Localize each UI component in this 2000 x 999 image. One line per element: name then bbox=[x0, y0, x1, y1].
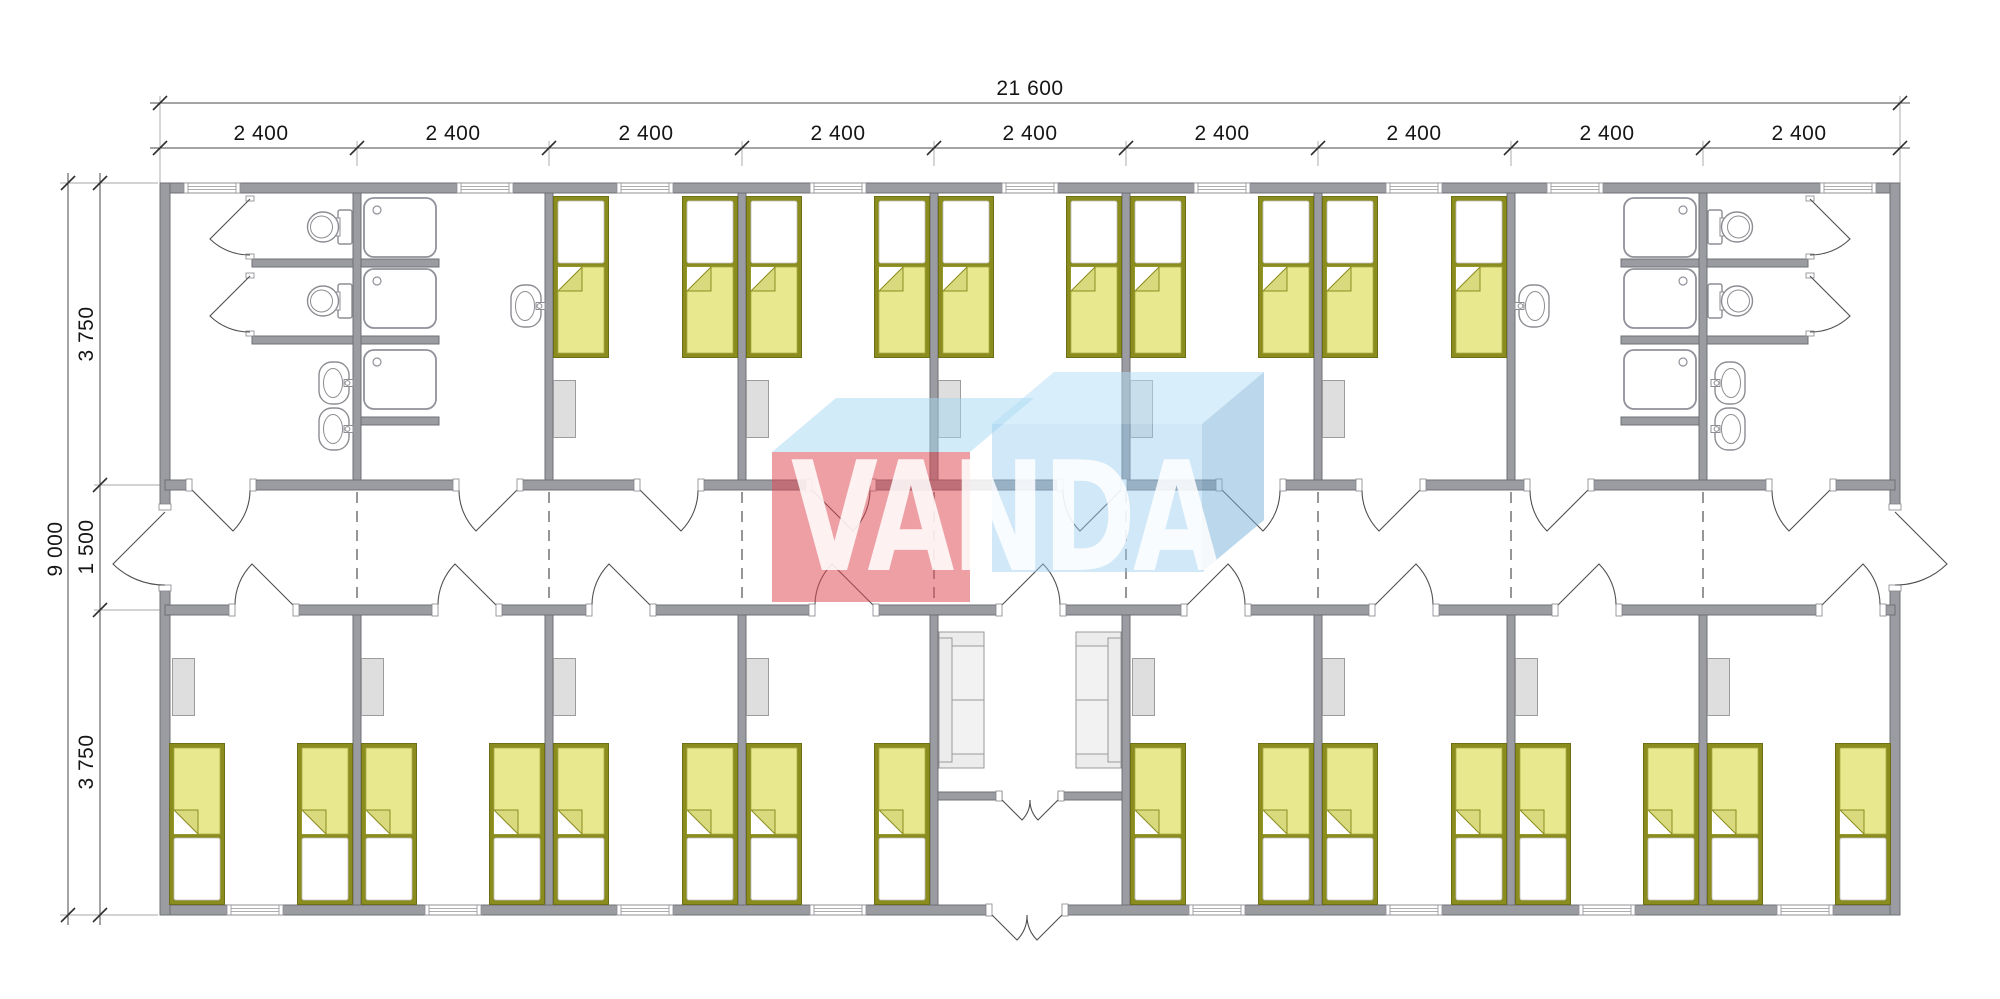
sofa bbox=[939, 632, 984, 768]
bed bbox=[1452, 197, 1507, 358]
window bbox=[457, 183, 513, 193]
window bbox=[1002, 183, 1058, 193]
entrance-door-swing bbox=[1027, 915, 1062, 940]
bed bbox=[1708, 744, 1763, 905]
shower-stall bbox=[364, 198, 436, 257]
dim-row-depth: 3 750 bbox=[75, 734, 98, 789]
partition-wall bbox=[738, 193, 746, 480]
wardrobe bbox=[1708, 659, 1730, 716]
beds-top-row bbox=[554, 197, 1507, 358]
shower-stall bbox=[1624, 269, 1696, 328]
floor-plan-canvas: 21 600 2 400 2 400 2 400 2 400 2 400 2 4… bbox=[0, 0, 2000, 999]
bed bbox=[1131, 197, 1186, 358]
shower-divider bbox=[1621, 336, 1699, 344]
bed bbox=[1452, 744, 1507, 905]
shower-stall bbox=[1624, 198, 1696, 257]
bed bbox=[747, 197, 802, 358]
dim-row-depth: 3 750 bbox=[75, 306, 98, 361]
door-swing bbox=[1810, 199, 1850, 255]
vanda-logo-text: VANDA bbox=[791, 429, 1220, 606]
partition-wall bbox=[1699, 615, 1707, 905]
wash-basin bbox=[1515, 285, 1549, 327]
bed bbox=[875, 197, 930, 358]
toilet-stall-wall bbox=[1707, 336, 1808, 344]
dim-module: 2 400 bbox=[1386, 122, 1441, 145]
shower-divider bbox=[1621, 259, 1699, 267]
toilet bbox=[308, 210, 353, 244]
bed bbox=[362, 744, 417, 905]
window bbox=[1547, 183, 1603, 193]
window bbox=[1579, 905, 1635, 915]
window bbox=[1386, 905, 1442, 915]
dim-total-width: 21 600 bbox=[996, 77, 1063, 100]
window bbox=[617, 183, 673, 193]
dim-total-height: 9 000 bbox=[44, 521, 67, 576]
wardrobe bbox=[747, 659, 769, 716]
bed bbox=[1131, 744, 1186, 905]
bed bbox=[1259, 744, 1314, 905]
shower-stall bbox=[364, 350, 436, 409]
window bbox=[184, 183, 240, 193]
partition-wall bbox=[1507, 193, 1515, 480]
door-swing bbox=[113, 512, 165, 585]
wardrobe bbox=[554, 381, 576, 438]
shower-divider bbox=[361, 417, 439, 425]
window bbox=[227, 905, 283, 915]
shower-divider bbox=[361, 259, 439, 267]
vestibule-wall bbox=[938, 792, 1002, 800]
vestibule-door-swing bbox=[1030, 800, 1058, 820]
wash-basin bbox=[511, 285, 545, 327]
bed bbox=[554, 197, 609, 358]
dim-module: 2 400 bbox=[233, 122, 288, 145]
partition-wall bbox=[545, 193, 553, 480]
door-swing bbox=[210, 199, 250, 255]
toilet-stall-wall bbox=[1707, 259, 1808, 267]
window bbox=[1777, 905, 1833, 915]
vestibule-wall bbox=[1058, 792, 1122, 800]
dim-module: 2 400 bbox=[1771, 122, 1826, 145]
door-swing bbox=[1895, 512, 1947, 585]
floor-plan-drawing: 21 600 2 400 2 400 2 400 2 400 2 400 2 4… bbox=[0, 0, 2000, 999]
wardrobe bbox=[173, 659, 195, 716]
window bbox=[1820, 183, 1876, 193]
dim-module: 2 400 bbox=[810, 122, 865, 145]
bed bbox=[1259, 197, 1314, 358]
window bbox=[1386, 183, 1442, 193]
window bbox=[425, 905, 481, 915]
toilet bbox=[1708, 284, 1753, 318]
lobby-furniture bbox=[939, 632, 1121, 768]
bed bbox=[490, 744, 545, 905]
door-swing bbox=[210, 276, 250, 332]
toilet-stall-wall bbox=[252, 259, 353, 267]
dim-module: 2 400 bbox=[425, 122, 480, 145]
shower-stall bbox=[1624, 350, 1696, 409]
partition-wall bbox=[545, 615, 553, 905]
dim-module: 2 400 bbox=[1002, 122, 1057, 145]
wash-basin bbox=[319, 408, 353, 450]
wardrobe bbox=[362, 659, 384, 716]
bed bbox=[1516, 744, 1571, 905]
wardrobe bbox=[1323, 659, 1345, 716]
bed bbox=[683, 744, 738, 905]
window bbox=[810, 183, 866, 193]
bed bbox=[875, 744, 930, 905]
bed bbox=[1323, 744, 1378, 905]
bed bbox=[1067, 197, 1122, 358]
bed bbox=[170, 744, 225, 905]
shower-divider bbox=[1621, 417, 1699, 425]
wardrobe bbox=[554, 659, 576, 716]
toilet bbox=[308, 284, 353, 318]
toilet bbox=[1708, 210, 1753, 244]
wardrobe bbox=[1516, 659, 1538, 716]
lobby-wall-right bbox=[1122, 615, 1130, 905]
wash-basin bbox=[319, 362, 353, 404]
bed bbox=[1644, 744, 1699, 905]
beds-bottom-row bbox=[170, 744, 1891, 905]
door-swing bbox=[1810, 276, 1850, 332]
vestibule-door-swing bbox=[1002, 800, 1030, 820]
wash-basin bbox=[1711, 408, 1745, 450]
partition-wall bbox=[353, 615, 361, 905]
partition-wall bbox=[353, 193, 361, 480]
bed bbox=[939, 197, 994, 358]
wardrobe bbox=[1133, 659, 1155, 716]
shower-divider bbox=[361, 336, 439, 344]
shower-stall bbox=[364, 269, 436, 328]
dim-row-depth: 1 500 bbox=[75, 519, 98, 574]
dim-module: 2 400 bbox=[618, 122, 673, 145]
sofa bbox=[1076, 632, 1121, 768]
window bbox=[1189, 905, 1245, 915]
partition-wall bbox=[1699, 193, 1707, 480]
window bbox=[1194, 183, 1250, 193]
partition-wall bbox=[738, 615, 746, 905]
wardrobe bbox=[747, 381, 769, 438]
wash-basin bbox=[1711, 362, 1745, 404]
partition-wall bbox=[1314, 193, 1322, 480]
bed bbox=[554, 744, 609, 905]
lobby-wall-left bbox=[930, 615, 938, 905]
toilet-stall-wall bbox=[252, 336, 353, 344]
bed bbox=[1836, 744, 1891, 905]
dim-module: 2 400 bbox=[1194, 122, 1249, 145]
bed bbox=[747, 744, 802, 905]
entrance-door-swing bbox=[992, 915, 1027, 940]
dim-module: 2 400 bbox=[1579, 122, 1634, 145]
bed bbox=[1323, 197, 1378, 358]
bed bbox=[683, 197, 738, 358]
window bbox=[617, 905, 673, 915]
window bbox=[810, 905, 866, 915]
wardrobe bbox=[1323, 381, 1345, 438]
partition-wall bbox=[1314, 615, 1322, 905]
vanda-logo: VANDA bbox=[772, 372, 1264, 606]
partition-wall bbox=[1507, 615, 1515, 905]
bed bbox=[298, 744, 353, 905]
